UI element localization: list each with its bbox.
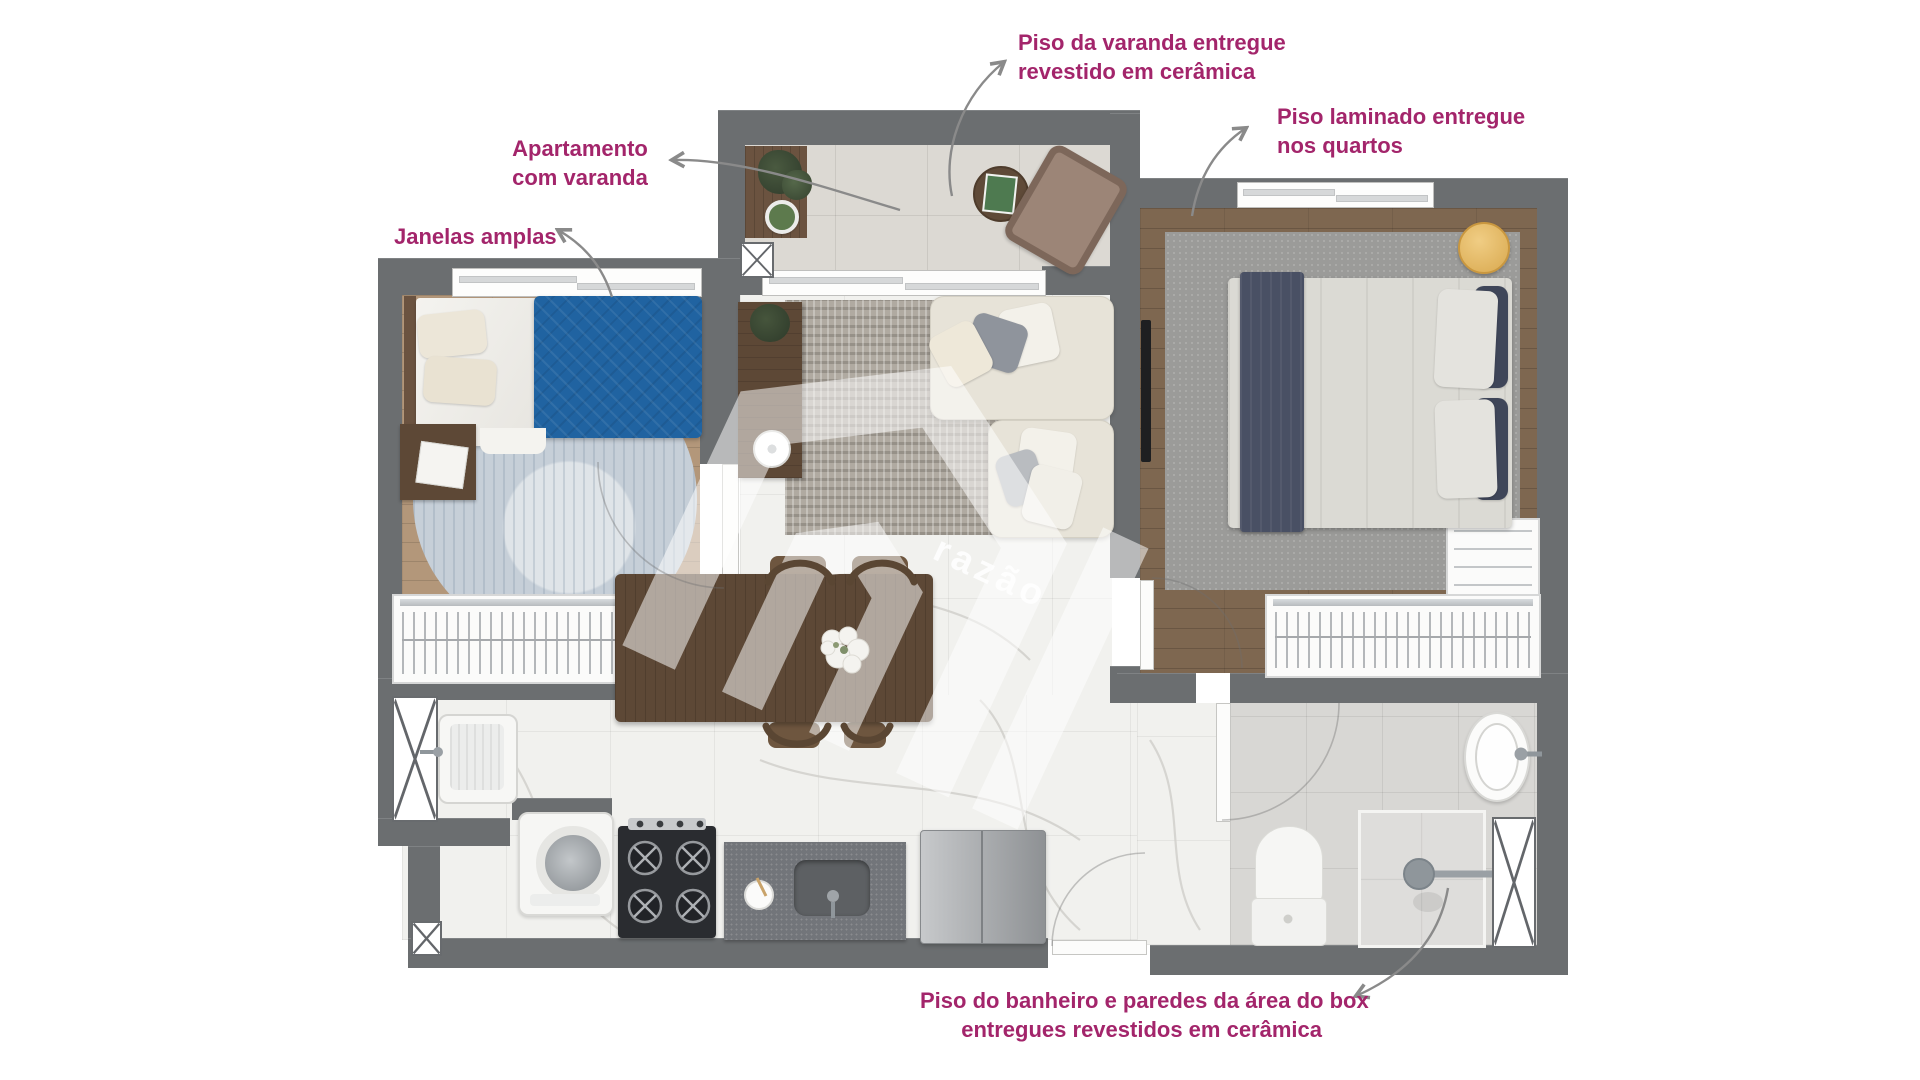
- shaft-x-icon: [1492, 817, 1536, 948]
- wall: [718, 110, 1140, 145]
- annotation-line: entregues revestidos em cerâmica: [920, 1015, 1322, 1044]
- wall: [1537, 178, 1568, 975]
- toilet-bowl: [1255, 826, 1323, 904]
- annotation-apartamento: Apartamento com varanda: [470, 134, 690, 192]
- annotation-laminado: Piso laminado entregue nos quartos: [1277, 102, 1525, 160]
- dining-stool-seat: [768, 722, 820, 748]
- bed2-tv: [1141, 320, 1151, 462]
- balcony-potted-plant: [765, 200, 799, 234]
- bed1-pillow: [422, 356, 497, 407]
- bedroom2-door: [1140, 580, 1154, 670]
- shower-box: [1358, 810, 1486, 948]
- annotation-line: com varanda: [470, 163, 690, 192]
- shaft-x-icon: [411, 921, 442, 956]
- speaker: [753, 430, 791, 468]
- stove-knob-strip: [628, 818, 706, 830]
- bedroom1-window: [452, 268, 702, 297]
- floor-plan-canvas: razão Piso da varanda entregue revestido…: [0, 0, 1920, 1080]
- annotation-line: Janelas amplas: [394, 222, 557, 251]
- balcony-table-book: [982, 173, 1018, 214]
- annotation-line: Piso do banheiro e paredes da área do bo…: [920, 986, 1322, 1015]
- entry-door: [1052, 940, 1147, 955]
- stove: [618, 826, 716, 938]
- annotation-varanda: Piso da varanda entregue revestido em ce…: [1018, 28, 1286, 86]
- dining-table: [615, 574, 933, 722]
- counter-sink: [794, 860, 870, 916]
- wall: [1117, 673, 1196, 703]
- bedroom2-window: [1237, 182, 1434, 208]
- washing-machine: [518, 812, 614, 916]
- annotation-line: revestido em cerâmica: [1018, 57, 1286, 86]
- bedroom1-door: [722, 464, 739, 590]
- refrigerator: [920, 830, 1046, 944]
- bed2-pillow: [1433, 288, 1498, 389]
- nightstand-tray: [415, 441, 468, 489]
- annotation-line: Piso laminado entregue: [1277, 102, 1525, 131]
- annotation-line: nos quartos: [1277, 131, 1525, 160]
- balcony-slider-window: [762, 270, 1046, 296]
- annotation-banheiro: Piso do banheiro e paredes da área do bo…: [920, 986, 1322, 1044]
- bedroom2-closet: [1265, 594, 1541, 678]
- bed2-pillow: [1434, 399, 1497, 499]
- bed1-pillow: [416, 309, 488, 360]
- annotation-janelas: Janelas amplas: [394, 222, 557, 251]
- wall: [700, 258, 740, 464]
- bed1-blue-quilt: [534, 296, 702, 438]
- toilet-tank: [1251, 898, 1327, 946]
- dining-stool-seat: [844, 722, 886, 748]
- bed2-navy-runner: [1240, 272, 1304, 532]
- shaft-x-icon: [740, 242, 774, 278]
- sideboard-plant: [750, 304, 790, 342]
- bedroom2-closet-bench: [1446, 518, 1540, 596]
- bathroom-door: [1216, 703, 1231, 822]
- prep-bowl: [744, 880, 774, 910]
- bed1-sheet-fold: [480, 428, 546, 454]
- shaft-x-icon: [392, 696, 438, 822]
- gold-side-table: [1458, 222, 1510, 274]
- laundry-tank: [438, 714, 518, 804]
- annotation-line: Piso da varanda entregue: [1018, 28, 1286, 57]
- bathroom-sink: [1464, 712, 1530, 802]
- annotation-line: Apartamento: [470, 134, 690, 163]
